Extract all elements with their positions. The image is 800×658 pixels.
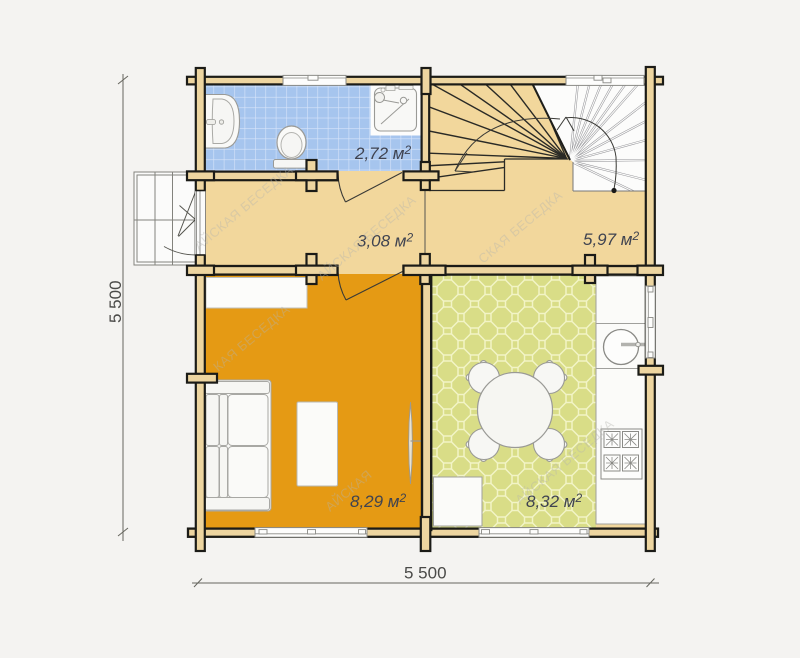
svg-text:5 500: 5 500 [106,280,125,323]
svg-text:2,72 м2: 2,72 м2 [354,143,411,163]
svg-text:8,29 м2: 8,29 м2 [350,491,406,511]
svg-text:5 500: 5 500 [404,564,447,583]
svg-text:5,97 м2: 5,97 м2 [583,229,639,249]
